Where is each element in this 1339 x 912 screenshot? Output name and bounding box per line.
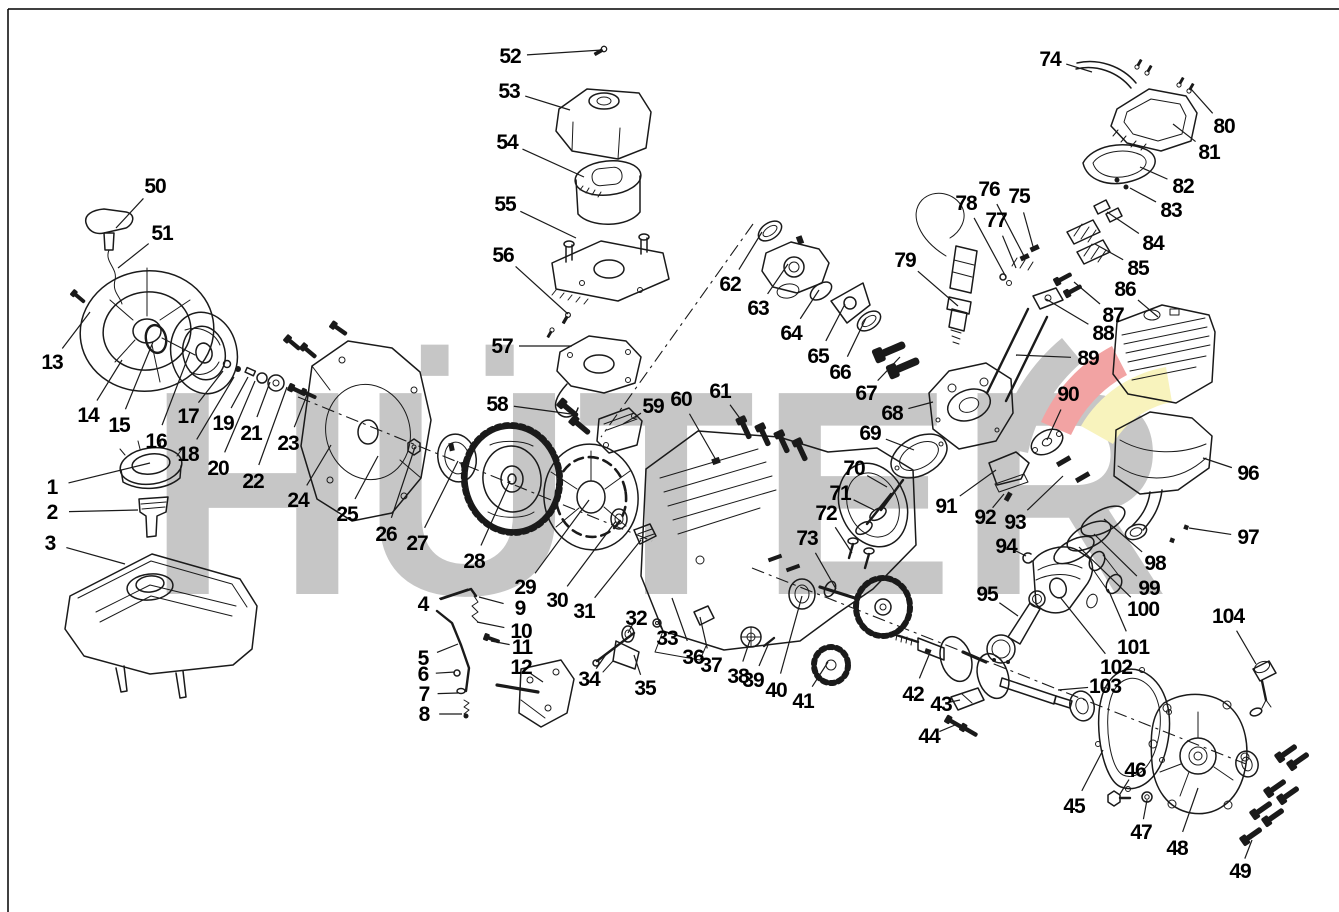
part-callout-79: 79 — [894, 249, 958, 306]
part-number-21: 21 — [240, 422, 263, 445]
part-callout-32: 32 — [625, 607, 647, 633]
part-number-28: 28 — [463, 550, 486, 573]
part-number-59: 59 — [642, 395, 664, 418]
leader-line-77 — [1003, 236, 1016, 268]
part-number-62: 62 — [719, 273, 741, 296]
part-number-30: 30 — [546, 589, 568, 612]
part-number-45: 45 — [1063, 795, 1086, 818]
part-number-39: 39 — [742, 669, 764, 692]
part-number-32: 32 — [625, 607, 647, 630]
part-number-85: 85 — [1127, 257, 1150, 280]
part-callout-45: 45 — [1063, 750, 1103, 818]
part-number-90: 90 — [1057, 383, 1079, 406]
part-callout-104: 104 — [1212, 605, 1256, 664]
part-callout-56: 56 — [492, 244, 568, 314]
part-number-49: 49 — [1229, 860, 1251, 883]
cover-bolts — [1233, 742, 1310, 845]
part-number-84: 84 — [1142, 232, 1165, 255]
part-number-51: 51 — [151, 222, 174, 245]
leader-line-54 — [522, 149, 584, 177]
leader-line-75 — [1024, 212, 1034, 250]
part-number-93: 93 — [1004, 511, 1026, 534]
part-number-13: 13 — [41, 351, 63, 374]
part-number-8: 8 — [419, 703, 431, 726]
part-number-82: 82 — [1172, 175, 1194, 198]
leader-line-50 — [116, 198, 143, 228]
part-number-27: 27 — [406, 532, 428, 555]
engine-parts-diagram: HÜTER — [0, 0, 1339, 912]
part-number-34: 34 — [578, 668, 601, 691]
part-number-31: 31 — [573, 600, 596, 623]
part-number-83: 83 — [1160, 199, 1182, 222]
leader-line-84 — [1107, 212, 1139, 233]
leader-line-53 — [525, 96, 570, 110]
leader-line-83 — [1130, 188, 1156, 202]
leader-line-88 — [1046, 299, 1088, 324]
part-number-42: 42 — [902, 683, 924, 706]
part-number-81: 81 — [1198, 141, 1221, 164]
speed-control-bracket — [497, 660, 574, 727]
part-number-103: 103 — [1089, 675, 1121, 698]
leader-line-86 — [1138, 300, 1158, 317]
spark-plug-set — [916, 193, 977, 344]
leader-line-48 — [1183, 788, 1198, 832]
part-callout-12: 12 — [510, 656, 543, 682]
part-number-24: 24 — [287, 489, 310, 512]
part-number-52: 52 — [499, 45, 521, 68]
part-number-100: 100 — [1127, 598, 1159, 621]
part-number-48: 48 — [1166, 837, 1189, 860]
part-number-70: 70 — [843, 457, 865, 480]
part-number-60: 60 — [670, 388, 692, 411]
part-number-33: 33 — [656, 627, 678, 650]
diagram-canvas: HÜTER — [0, 0, 1339, 912]
part-callout-82: 82 — [1140, 167, 1194, 198]
part-callout-44: 44 — [918, 725, 955, 748]
part-callout-84: 84 — [1107, 212, 1165, 255]
part-number-29: 29 — [514, 576, 536, 599]
part-number-68: 68 — [881, 402, 904, 425]
part-number-65: 65 — [807, 345, 830, 368]
part-callout-53: 53 — [498, 80, 570, 110]
part-number-12: 12 — [510, 656, 532, 679]
leader-line-97 — [1189, 528, 1231, 534]
valve-cover-gasket — [1083, 145, 1155, 190]
part-number-72: 72 — [815, 502, 837, 525]
part-number-1: 1 — [47, 476, 59, 499]
leader-line-104 — [1237, 631, 1256, 664]
part-callout-49: 49 — [1229, 840, 1252, 883]
part-number-20: 20 — [207, 457, 229, 480]
part-number-44: 44 — [918, 725, 941, 748]
part-number-89: 89 — [1077, 347, 1099, 370]
part-callout-13: 13 — [41, 312, 90, 374]
part-number-67: 67 — [855, 382, 877, 405]
part-number-79: 79 — [894, 249, 916, 272]
part-number-66: 66 — [829, 361, 851, 384]
part-callout-62: 62 — [719, 232, 762, 296]
part-callout-96: 96 — [1203, 458, 1259, 485]
part-number-18: 18 — [177, 443, 200, 466]
leader-line-2 — [69, 510, 138, 512]
part-number-15: 15 — [108, 414, 131, 437]
part-callout-54: 54 — [496, 131, 584, 177]
part-callout-77: 77 — [985, 209, 1016, 268]
leader-line-87 — [1074, 282, 1100, 304]
part-callout-41: 41 — [792, 662, 828, 713]
part-number-19: 19 — [212, 412, 234, 435]
part-callout-63: 63 — [747, 264, 788, 320]
part-callout-103: 103 — [1058, 675, 1121, 698]
leader-line-51 — [118, 244, 149, 268]
part-number-73: 73 — [796, 527, 818, 550]
leader-line-103 — [1058, 687, 1088, 690]
oil-sensor — [1249, 659, 1276, 717]
part-callout-42: 42 — [902, 655, 929, 706]
part-number-57: 57 — [491, 335, 513, 358]
part-number-35: 35 — [634, 677, 657, 700]
part-number-76: 76 — [978, 178, 1000, 201]
part-number-58: 58 — [486, 393, 509, 416]
part-number-9: 9 — [515, 597, 526, 620]
part-callout-55: 55 — [494, 193, 576, 238]
part-number-69: 69 — [859, 422, 881, 445]
part-number-50: 50 — [144, 175, 166, 198]
part-number-63: 63 — [747, 297, 769, 320]
part-number-96: 96 — [1237, 462, 1259, 485]
part-number-86: 86 — [1114, 278, 1136, 301]
part-number-17: 17 — [177, 405, 199, 428]
crankcase-cover — [1149, 694, 1249, 813]
part-callout-1: 1 — [47, 463, 150, 499]
leader-line-14 — [97, 360, 122, 401]
part-number-56: 56 — [492, 244, 514, 267]
part-number-61: 61 — [709, 380, 732, 403]
leader-line-7 — [438, 693, 458, 694]
part-number-22: 22 — [242, 470, 264, 493]
part-number-14: 14 — [77, 404, 100, 427]
part-number-74: 74 — [1039, 48, 1062, 71]
part-number-92: 92 — [974, 506, 996, 529]
part-number-41: 41 — [792, 690, 815, 713]
part-number-25: 25 — [336, 503, 359, 526]
part-number-78: 78 — [955, 192, 978, 215]
part-callout-97: 97 — [1189, 526, 1259, 549]
part-callout-8: 8 — [419, 703, 462, 726]
part-number-91: 91 — [935, 495, 958, 518]
part-number-16: 16 — [145, 430, 167, 453]
part-number-3: 3 — [45, 532, 56, 555]
part-number-64: 64 — [780, 322, 803, 345]
part-number-98: 98 — [1144, 552, 1167, 575]
air-filter-assembly — [546, 45, 669, 338]
leader-line-47 — [1143, 800, 1147, 819]
leader-line-82 — [1140, 167, 1167, 179]
part-number-88: 88 — [1092, 322, 1115, 345]
part-callout-3: 3 — [45, 532, 125, 564]
leader-line-64 — [800, 290, 819, 319]
part-number-43: 43 — [930, 693, 952, 716]
part-callout-75: 75 — [1008, 185, 1034, 250]
leader-line-62 — [739, 232, 762, 270]
part-callout-2: 2 — [47, 501, 138, 524]
leader-line-42 — [919, 655, 929, 678]
part-number-2: 2 — [47, 501, 58, 524]
rocker-arm-parts — [1000, 200, 1122, 309]
part-number-104: 104 — [1212, 605, 1245, 628]
part-number-53: 53 — [498, 80, 520, 103]
part-number-80: 80 — [1213, 115, 1235, 138]
part-number-95: 95 — [976, 583, 999, 606]
part-number-94: 94 — [995, 535, 1018, 558]
oil-drain-plug — [1108, 791, 1152, 806]
part-number-54: 54 — [496, 131, 519, 154]
part-callout-50: 50 — [116, 175, 166, 228]
leader-line-55 — [520, 211, 576, 238]
part-number-46: 46 — [1124, 759, 1146, 782]
leader-line-6 — [436, 672, 455, 673]
leader-line-96 — [1203, 458, 1232, 468]
breather-tube — [1076, 62, 1136, 88]
part-callout-33: 33 — [656, 622, 678, 650]
part-callout-52: 52 — [499, 45, 602, 68]
part-number-37: 37 — [700, 654, 722, 677]
leader-line-13 — [62, 312, 90, 348]
part-callout-51: 51 — [118, 222, 174, 268]
part-number-55: 55 — [494, 193, 517, 216]
part-number-40: 40 — [765, 679, 787, 702]
leader-line-44 — [939, 725, 955, 732]
leader-line-52 — [527, 50, 602, 55]
leader-line-3 — [66, 548, 125, 564]
part-number-23: 23 — [277, 432, 299, 455]
part-number-4: 4 — [418, 593, 430, 616]
part-callout-78: 78 — [955, 192, 1006, 277]
part-number-75: 75 — [1008, 185, 1031, 208]
part-number-97: 97 — [1237, 526, 1259, 549]
part-number-99: 99 — [1138, 577, 1160, 600]
part-callout-48: 48 — [1166, 788, 1198, 860]
leader-line-45 — [1082, 750, 1103, 791]
part-number-47: 47 — [1130, 821, 1152, 844]
part-number-77: 77 — [985, 209, 1007, 232]
part-number-26: 26 — [375, 523, 397, 546]
part-callout-47: 47 — [1130, 800, 1152, 844]
